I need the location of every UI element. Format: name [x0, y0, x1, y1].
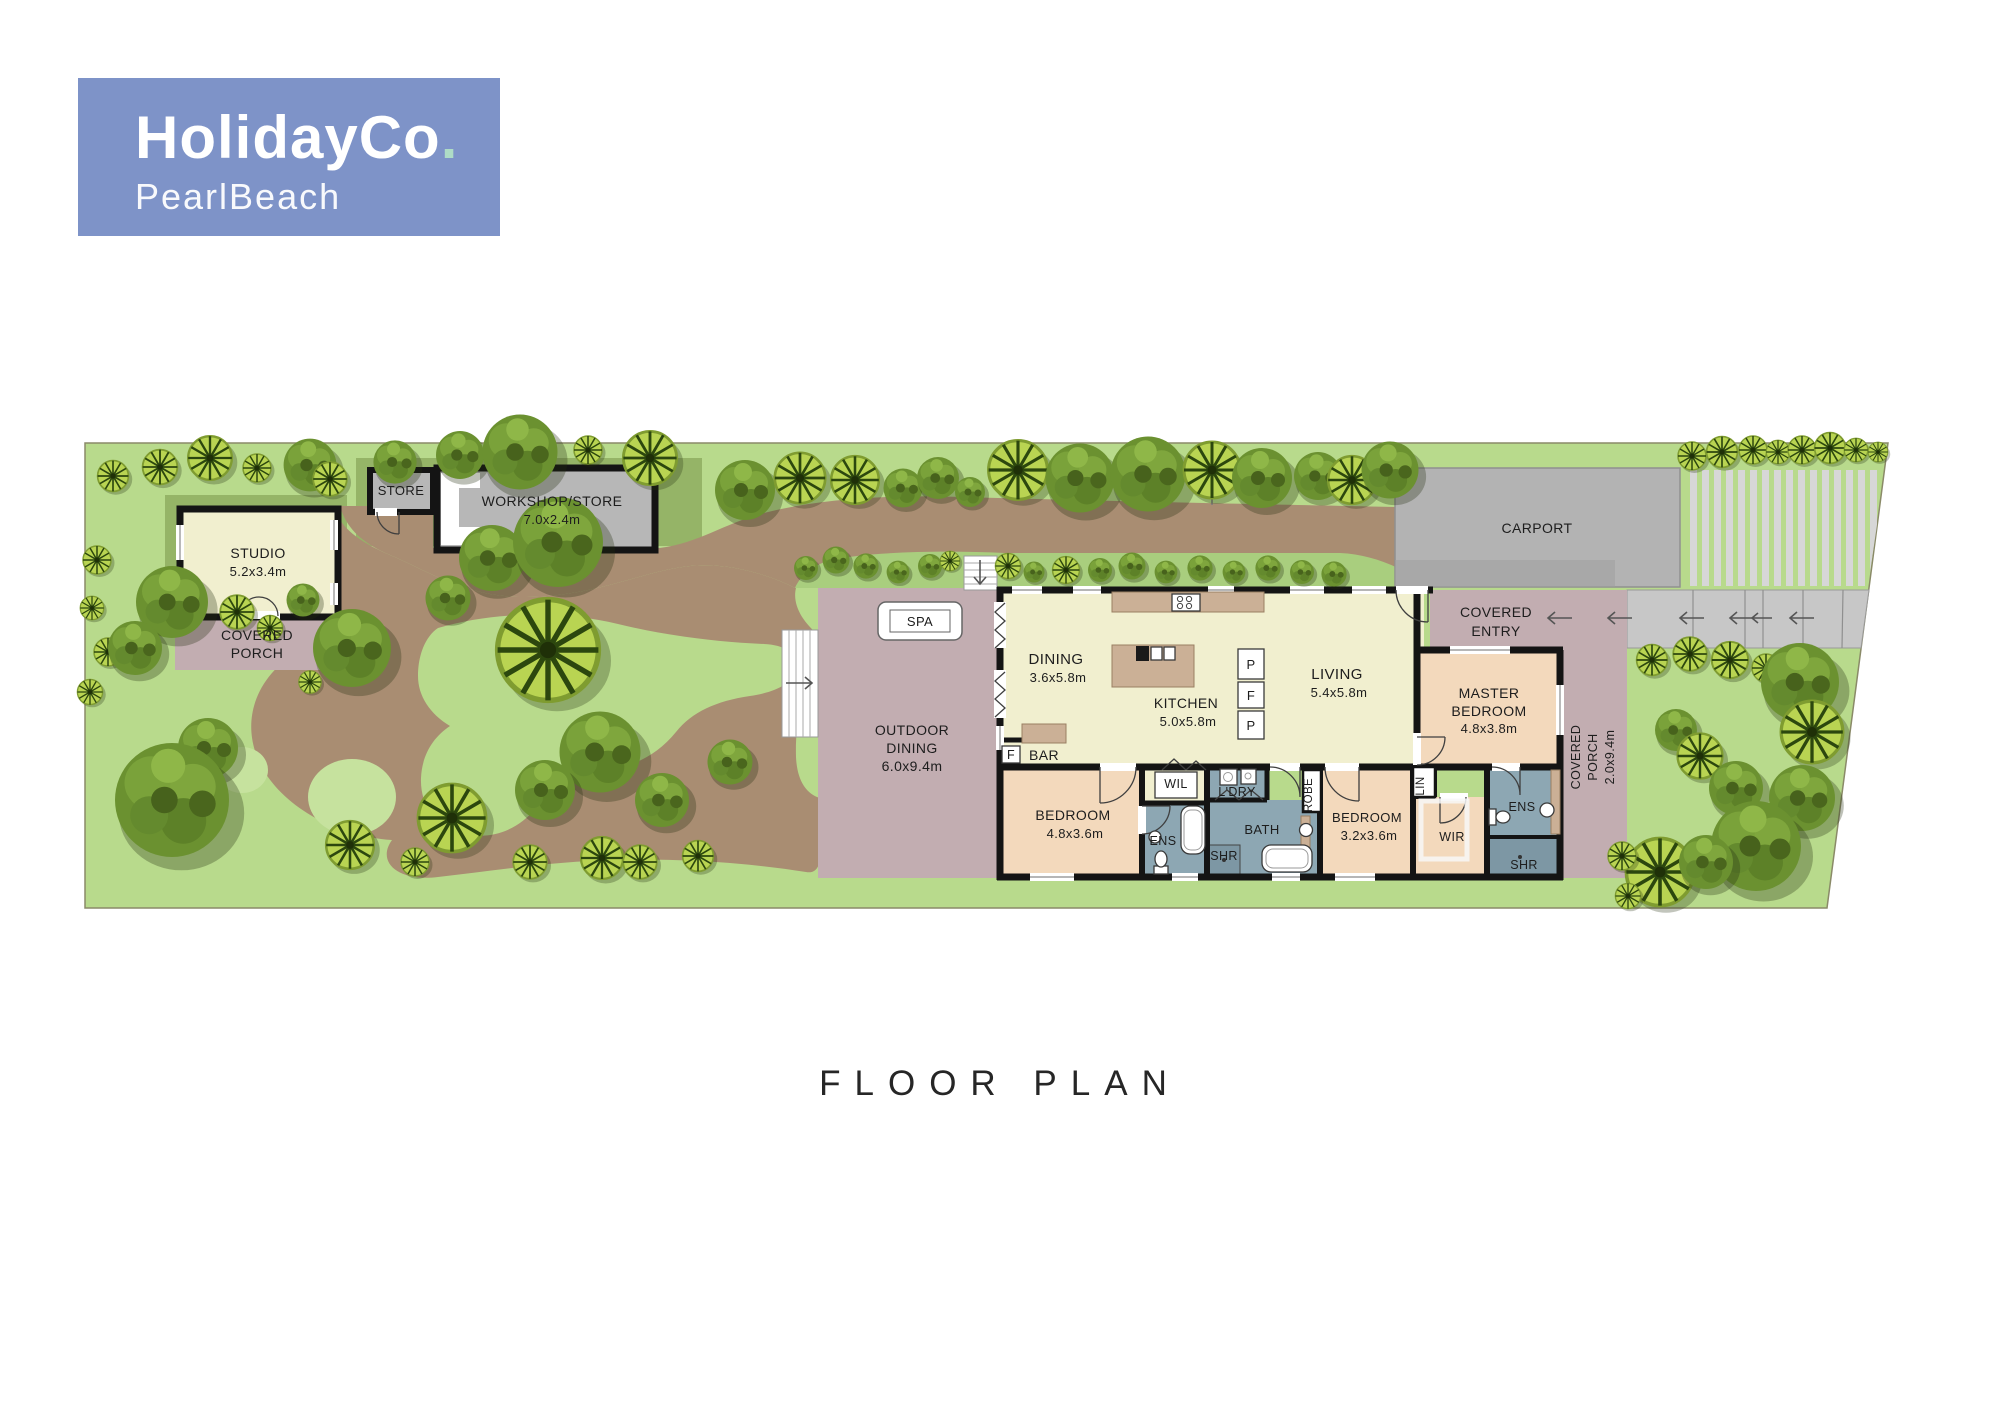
entry-steps — [964, 556, 997, 590]
master-bedroom-size: 4.8x3.8m — [1461, 721, 1518, 736]
toilet-icon — [1489, 809, 1496, 825]
basin-icon — [1540, 803, 1554, 817]
kitchen-label: KITCHEN — [1154, 695, 1218, 711]
studio-porch-label: COVERED — [221, 627, 293, 643]
outdoor-dining-size: 6.0x9.4m — [882, 758, 943, 774]
wir-label: WIR — [1439, 830, 1465, 844]
linen-label: LIN — [1415, 776, 1427, 795]
site-plan: STORE WORKSHOP/STORE 7.0x2.4m STUDIO 5.2… — [77, 415, 1890, 913]
shower2-label: SHR — [1510, 858, 1538, 872]
shower1-label: SHR — [1210, 849, 1238, 863]
bath-label: BATH — [1244, 822, 1279, 837]
studio-label: STUDIO — [230, 545, 285, 561]
pantry-label: P — [1246, 718, 1255, 733]
washer-icon — [1220, 769, 1237, 785]
robe-label: ROBE — [1303, 778, 1315, 812]
laundry-label: L'DRY — [1218, 785, 1256, 799]
outdoor-dining-label: DINING — [886, 740, 937, 756]
master-bedroom-label: BEDROOM — [1451, 703, 1526, 719]
front-walkway — [1627, 590, 1869, 648]
bar-label: BAR — [1029, 747, 1059, 763]
covered-porch-label: PORCH — [1586, 733, 1600, 780]
floor-plan-canvas: STORE WORKSHOP/STORE 7.0x2.4m STUDIO 5.2… — [0, 0, 2000, 1413]
cooktop-icon — [1172, 594, 1200, 611]
master-bedroom-label: MASTER — [1459, 685, 1520, 701]
ens1-label: ENS — [1150, 834, 1177, 848]
bedroom1-label: BEDROOM — [1035, 807, 1110, 823]
laundry-tub-icon — [1241, 769, 1256, 784]
bar-bench — [1022, 724, 1066, 743]
carport-label: CARPORT — [1502, 520, 1573, 536]
covered-entry-label: ENTRY — [1471, 623, 1520, 639]
bedroom1-size: 4.8x3.6m — [1047, 826, 1104, 841]
fridge-label: F — [1007, 748, 1015, 762]
ens2-label: ENS — [1509, 800, 1536, 814]
studio-porch-label: PORCH — [231, 645, 284, 661]
workshop-label: WORKSHOP/STORE — [482, 493, 623, 509]
spa-label: SPA — [907, 614, 933, 629]
page-title: FLOOR PLAN — [819, 1064, 1181, 1104]
living-label: LIVING — [1311, 666, 1363, 683]
studio-size: 5.2x3.4m — [230, 564, 287, 579]
fridge-label: F — [1247, 688, 1255, 703]
pantry-label: P — [1246, 657, 1255, 672]
dining-size: 3.6x5.8m — [1030, 670, 1087, 685]
outdoor-dining-label: OUTDOOR — [875, 722, 949, 738]
sink-icon — [1151, 647, 1162, 660]
bedroom2-size: 3.2x3.6m — [1341, 828, 1398, 843]
workshop-size: 7.0x2.4m — [524, 512, 581, 527]
side-steps — [782, 630, 818, 737]
kitchen-size: 5.0x5.8m — [1160, 714, 1217, 729]
covered-porch-size: 2.0x9.4m — [1603, 730, 1617, 785]
wil-label: WIL — [1164, 777, 1187, 791]
living-size: 5.4x5.8m — [1311, 685, 1368, 700]
store-label: STORE — [378, 483, 425, 498]
covered-porch-label: COVERED — [1569, 725, 1583, 790]
bedroom2-label: BEDROOM — [1332, 810, 1402, 825]
dining-label: DINING — [1029, 651, 1084, 668]
basin-icon — [1300, 824, 1313, 837]
covered-entry-label: COVERED — [1460, 604, 1532, 620]
